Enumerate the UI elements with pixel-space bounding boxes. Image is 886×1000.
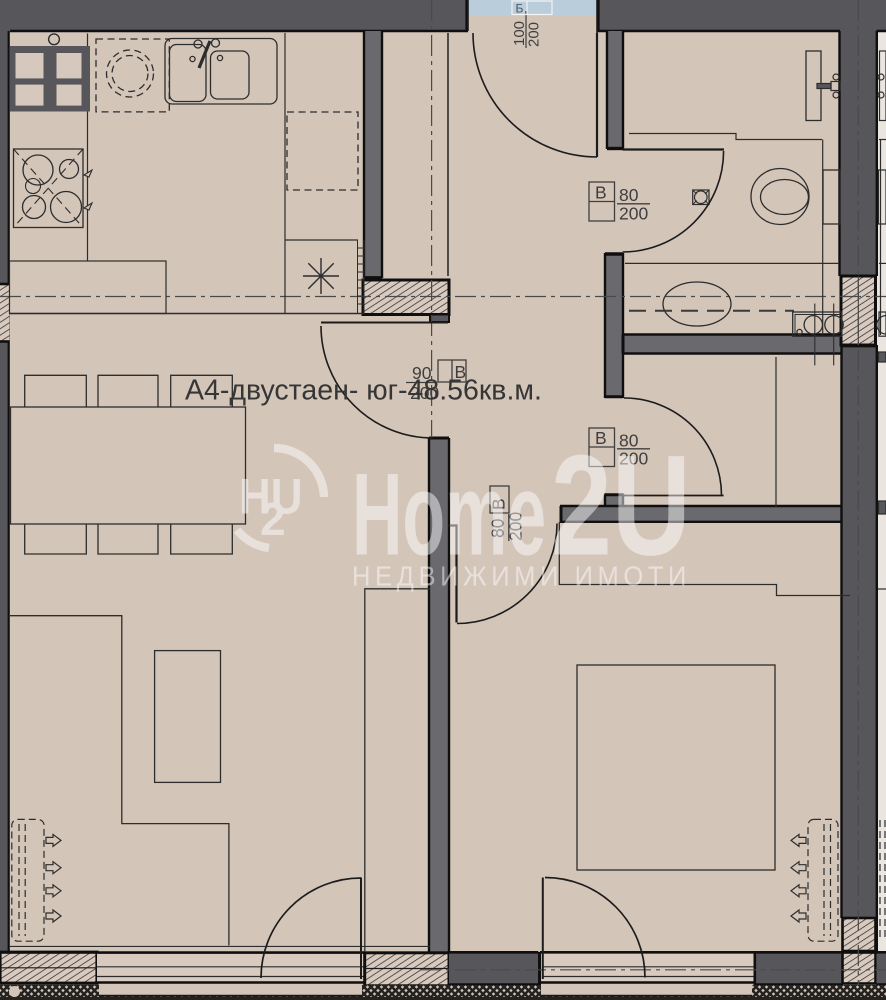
svg-text:200: 200 <box>526 22 543 47</box>
svg-text:НЕДВИЖИМИ ИМОТИ: НЕДВИЖИМИ ИМОТИ <box>352 561 691 592</box>
svg-text:B: B <box>595 183 607 203</box>
svg-text:Б: Б <box>516 2 524 16</box>
svg-text:80: 80 <box>619 185 639 205</box>
svg-text:2: 2 <box>260 493 286 545</box>
svg-text:200: 200 <box>619 204 648 224</box>
svg-text:А4-двустаен- юг-48.56кв.м.: А4-двустаен- юг-48.56кв.м. <box>185 375 542 407</box>
